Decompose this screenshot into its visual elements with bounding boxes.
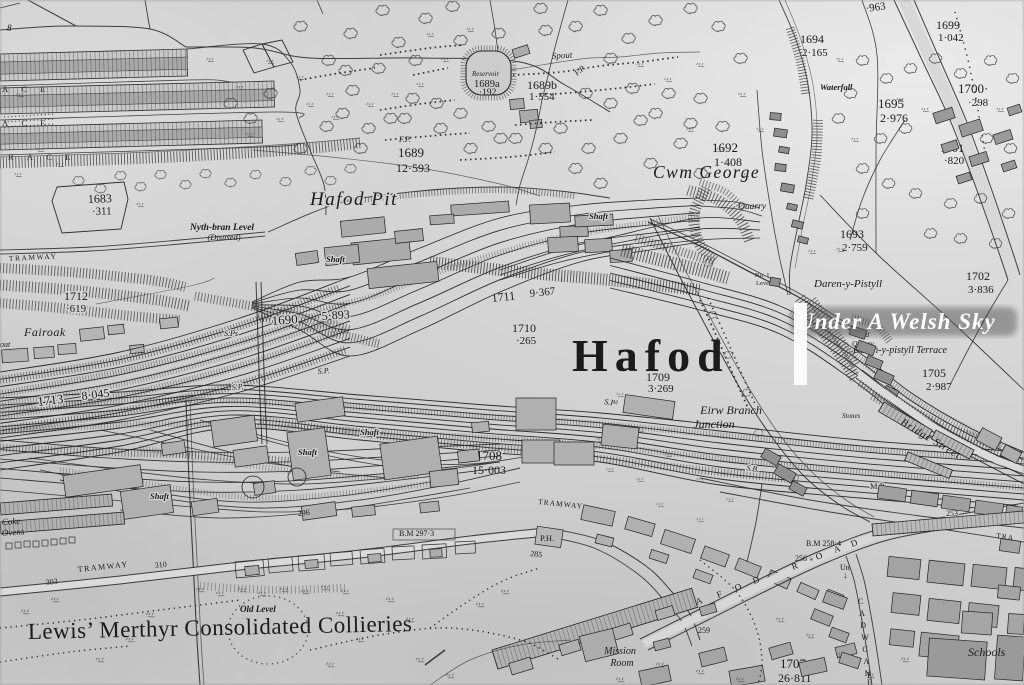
svg-text:Reservoir: Reservoir xyxy=(471,70,499,78)
svg-text:259: 259 xyxy=(698,626,710,635)
svg-text:285: 285 xyxy=(530,549,543,559)
svg-text:Shaft: Shaft xyxy=(326,254,346,264)
svg-text:Level: Level xyxy=(756,280,771,287)
svg-text:Shaft: Shaft xyxy=(298,447,318,457)
svg-text:310: 310 xyxy=(154,560,167,570)
svg-text:1705: 1705 xyxy=(922,366,946,380)
svg-text:No. 1: No. 1 xyxy=(755,272,769,279)
svg-text:1692: 1692 xyxy=(712,140,738,155)
svg-text:↓: ↓ xyxy=(843,570,848,580)
svg-text:3·269: 3·269 xyxy=(648,383,674,395)
svg-text:·820: ·820 xyxy=(944,155,965,167)
svg-text:Shaft: Shaft xyxy=(589,211,609,221)
svg-text:1·042: 1·042 xyxy=(938,32,964,44)
svg-text:Waterfall: Waterfall xyxy=(820,82,853,92)
svg-text:Schools: Schools xyxy=(968,645,1006,659)
svg-text:S.P²: S.P² xyxy=(604,397,619,408)
svg-text:Ovens: Ovens xyxy=(1,526,25,538)
svg-text:Room: Room xyxy=(609,658,633,669)
svg-text:Under A Welsh Sky: Under A Welsh Sky xyxy=(797,309,996,334)
svg-text:Hafod Pit: Hafod Pit xyxy=(309,189,398,210)
svg-text:·311: ·311 xyxy=(92,205,112,218)
svg-text:1694: 1694 xyxy=(800,32,824,46)
svg-text:2·759: 2·759 xyxy=(842,242,868,254)
svg-text:Old Level: Old Level xyxy=(240,604,276,614)
svg-text:A C E: A C E xyxy=(2,84,49,94)
svg-text:W: W xyxy=(861,633,869,642)
svg-text:3·836: 3·836 xyxy=(968,284,994,296)
svg-text:2·165: 2·165 xyxy=(802,47,828,59)
svg-text:12·593: 12·593 xyxy=(396,161,430,175)
svg-text:1711: 1711 xyxy=(491,289,516,305)
svg-text:1713: 1713 xyxy=(37,391,65,409)
svg-text:F.P.: F.P. xyxy=(398,135,411,144)
svg-text:1702: 1702 xyxy=(966,269,990,283)
svg-text:1690: 1690 xyxy=(271,311,298,328)
svg-text:A: A xyxy=(864,657,870,666)
svg-text:1709: 1709 xyxy=(646,370,670,384)
svg-text:·265: ·265 xyxy=(516,335,537,347)
svg-text:Cwm George: Cwm George xyxy=(653,162,760,182)
svg-text:D: D xyxy=(860,621,866,630)
svg-text:Eirw Branch: Eirw Branch xyxy=(699,403,762,417)
svg-text:1689b: 1689b xyxy=(527,78,557,92)
svg-text:296: 296 xyxy=(297,508,310,518)
svg-text:Shaft: Shaft xyxy=(360,427,380,437)
svg-text:S.P.: S.P. xyxy=(231,382,244,392)
svg-text:Spout: Spout xyxy=(551,50,573,61)
svg-text:Mission: Mission xyxy=(603,646,636,657)
svg-text:Stones: Stones xyxy=(842,412,861,420)
svg-text:P.H.: P.H. xyxy=(540,533,554,543)
svg-text:Fairoak: Fairoak xyxy=(23,325,66,339)
svg-text:G: G xyxy=(862,645,868,654)
svg-text:B.M 258·4: B.M 258·4 xyxy=(806,539,841,548)
svg-text:8: 8 xyxy=(7,23,12,33)
svg-text:5·893: 5·893 xyxy=(321,307,350,323)
svg-text:·619: ·619 xyxy=(66,303,87,315)
svg-text:S.Ps: S.Ps xyxy=(224,329,238,338)
svg-text:S.P.: S.P. xyxy=(317,366,330,376)
svg-text:Daren-y-Pistyll: Daren-y-Pistyll xyxy=(813,278,882,290)
svg-text:·298: ·298 xyxy=(968,97,989,109)
svg-text:1710: 1710 xyxy=(512,321,536,335)
svg-text:256: 256 xyxy=(795,554,807,563)
svg-text:2·987: 2·987 xyxy=(926,381,952,393)
svg-text:1712: 1712 xyxy=(64,289,88,303)
svg-text:A: A xyxy=(859,609,865,618)
svg-text:303: 303 xyxy=(45,577,58,587)
svg-text:Shaft: Shaft xyxy=(150,491,170,501)
svg-text:out: out xyxy=(0,340,11,349)
svg-text:2·976: 2·976 xyxy=(880,111,908,125)
svg-text:·192: ·192 xyxy=(479,88,497,98)
svg-text:Junction: Junction xyxy=(693,417,734,431)
svg-text:C: C xyxy=(858,597,863,606)
svg-text:B.M 297·3: B.M 297·3 xyxy=(399,529,434,538)
svg-text:1700·: 1700· xyxy=(958,81,988,96)
svg-text:1699: 1699 xyxy=(936,18,960,32)
svg-text:Coke: Coke xyxy=(1,516,20,527)
svg-text:1689: 1689 xyxy=(398,145,424,160)
